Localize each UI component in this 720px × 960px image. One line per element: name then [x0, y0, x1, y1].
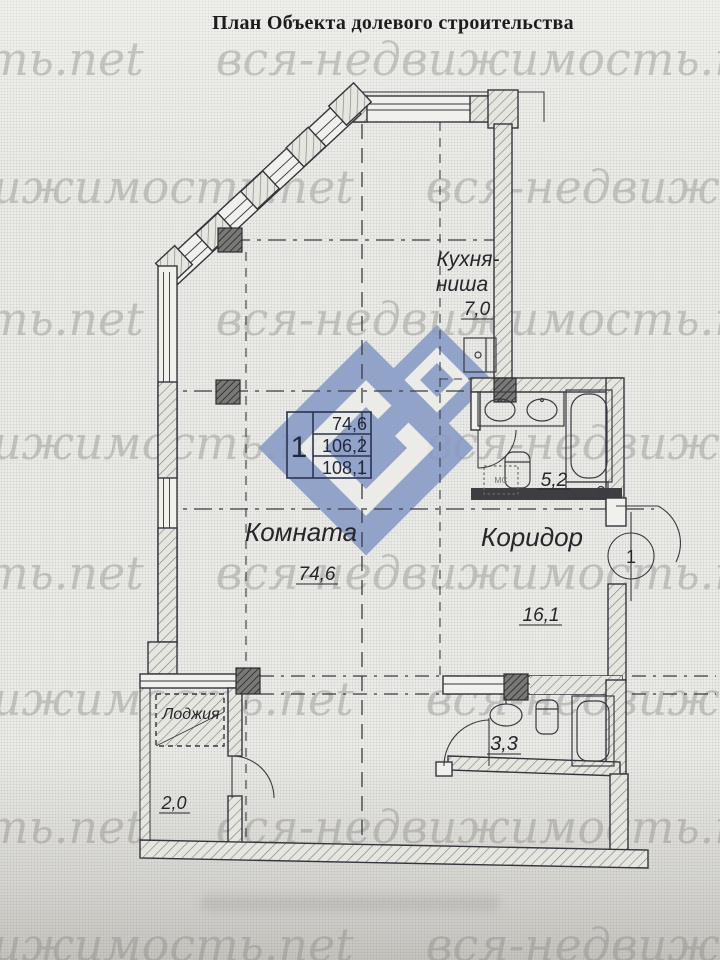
page-title: План Объекта долевого строительства: [33, 12, 720, 35]
wc-washbasin: [490, 698, 522, 726]
table-value-total: 108,1: [322, 458, 367, 478]
bathroom-area: 5,2: [541, 470, 568, 491]
kitchen-label-line1: Кухня-: [437, 248, 500, 271]
floor-plan-drawing: 1 74,6 106,2 108,1 Кухня- ниша 7,0 Комна…: [0, 0, 720, 960]
washing-machine-label: МС: [494, 475, 507, 485]
wc-toilet: [536, 700, 558, 734]
faded-stamp-smudge: [200, 895, 500, 911]
living-room-label: Комната: [245, 517, 357, 547]
corridor-label: Коридор: [481, 522, 583, 552]
scanned-floor-plan-page: вся-недвижимость.netвся-недвижимость.net…: [0, 0, 720, 960]
kitchen-label-line2: ниша: [436, 273, 488, 296]
bathtub: [566, 390, 612, 498]
corridor-area: 16,1: [523, 605, 560, 626]
living-room-area: 74,6: [299, 564, 336, 585]
plumbing-fixtures: [464, 338, 614, 766]
table-value-area: 106,2: [322, 436, 367, 456]
table-value-living: 74,6: [332, 414, 367, 434]
wc-area: 3,3: [490, 733, 518, 755]
loggia-area: 2,0: [160, 793, 186, 813]
entrance-door-number: 1: [626, 547, 636, 567]
loggia-label: Лоджия: [161, 706, 220, 723]
loggia-door: [232, 756, 274, 798]
kitchen-area: 7,0: [464, 299, 491, 320]
double-washbasin: [478, 392, 564, 426]
apartment-number: 1: [291, 431, 308, 464]
